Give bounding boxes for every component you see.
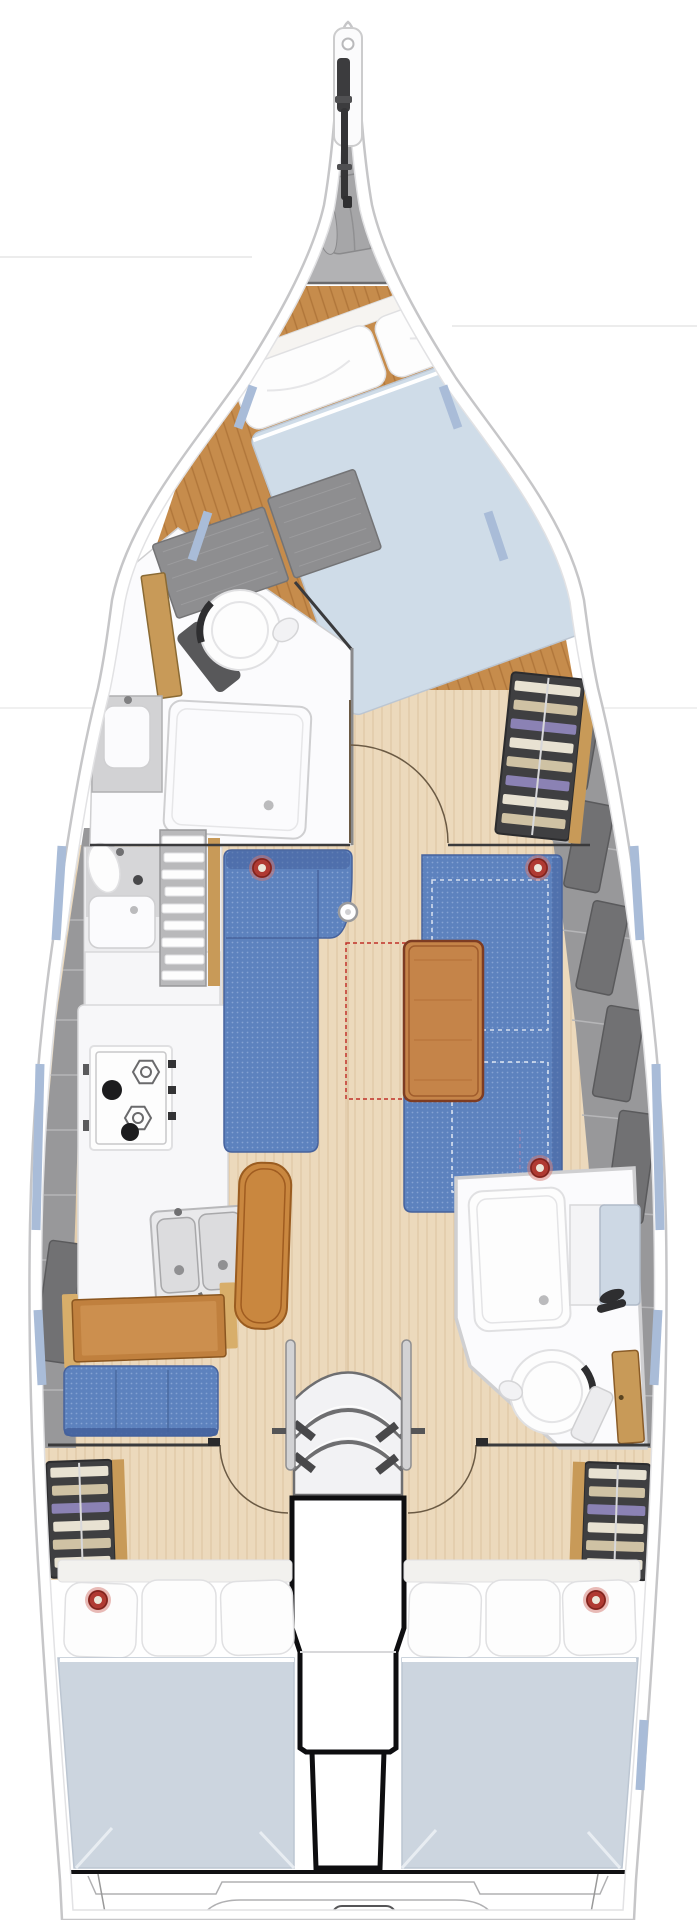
- burner: [121, 1123, 139, 1141]
- aft-head-wood-door: [612, 1350, 644, 1444]
- mast-post: [339, 903, 357, 921]
- mattress: [58, 1658, 294, 1868]
- red-ring-marker: [583, 1587, 609, 1613]
- anchor-fitting-hole: [343, 39, 354, 50]
- pillow: [486, 1580, 560, 1656]
- engine-box-lower: [312, 1752, 384, 1868]
- port-wet-area: [83, 830, 222, 1013]
- nav-seat: [64, 1366, 218, 1436]
- red-ring-marker: [527, 1155, 553, 1181]
- clothes-shelf-forward: [495, 670, 598, 844]
- center-bench: [234, 1162, 292, 1330]
- mattress: [402, 1658, 638, 1868]
- aft-head-shower: [468, 1187, 571, 1332]
- faucet: [124, 696, 132, 704]
- salon-table: [404, 941, 483, 1101]
- burner: [102, 1080, 122, 1100]
- red-ring-marker: [249, 855, 275, 881]
- headboard: [58, 1560, 292, 1582]
- shower-pan: [89, 896, 155, 948]
- forward-head: [90, 469, 382, 845]
- forward-head-shower: [163, 700, 312, 839]
- louvered-locker: [160, 830, 220, 986]
- companionway-rail: [286, 1340, 295, 1470]
- pillow: [142, 1580, 216, 1656]
- companionway-rail: [402, 1340, 411, 1470]
- stove: [83, 1046, 176, 1150]
- engine-box: [292, 1498, 404, 1752]
- wood-trim: [208, 838, 220, 986]
- red-ring-marker: [85, 1587, 111, 1613]
- headboard: [404, 1560, 640, 1582]
- yacht-floor-plan: [0, 0, 697, 1920]
- yacht-floor-plan-canvas: [0, 0, 697, 1920]
- pillow: [220, 1579, 295, 1655]
- drain: [133, 875, 143, 885]
- pillow: [407, 1582, 482, 1658]
- faucet: [116, 848, 124, 856]
- red-ring-marker: [525, 855, 551, 881]
- forward-head-basin: [104, 706, 150, 768]
